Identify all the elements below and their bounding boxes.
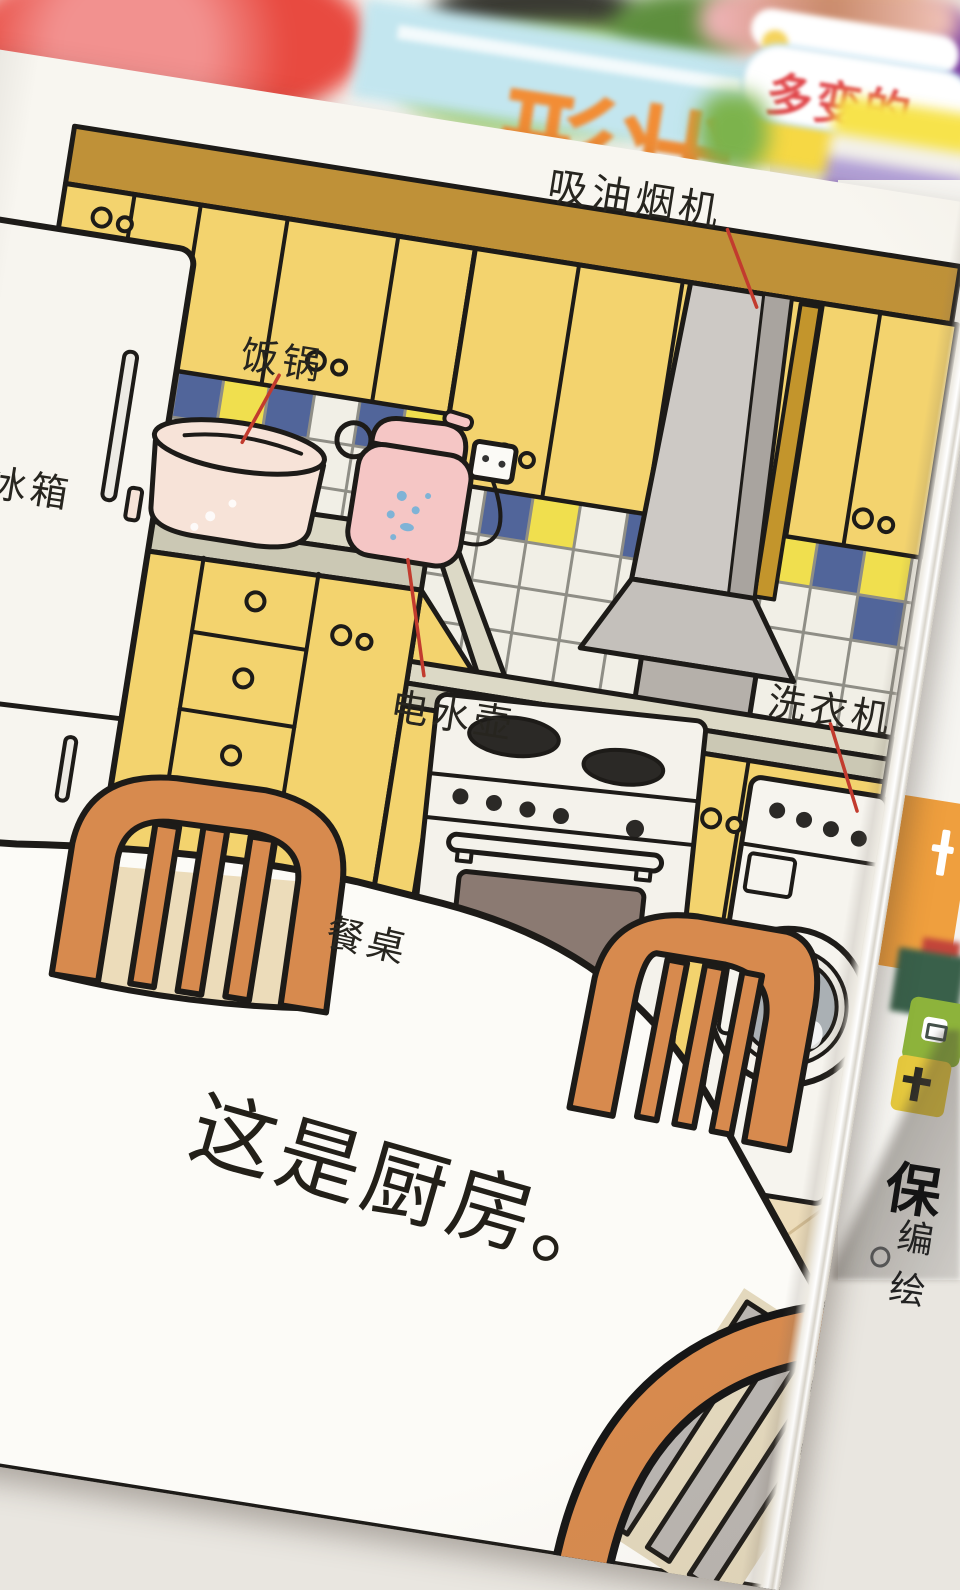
white-glyph-fragment-2	[931, 844, 954, 854]
under-page-text-2: 编绘	[886, 1207, 960, 1320]
photo-scene: { "page": { "labels": [ {"id": "fridge",…	[0, 0, 960, 1280]
green-sliver-shape	[698, 92, 768, 170]
publisher-logo-ring	[869, 1245, 892, 1269]
book-page: 冰箱 饭锅 吸油烟机 电水壶 洗衣机 餐桌 这是厨房。	[0, 45, 960, 1590]
kitchen-illustration	[0, 45, 960, 1590]
under-page-credit: 编绘	[862, 1204, 960, 1321]
